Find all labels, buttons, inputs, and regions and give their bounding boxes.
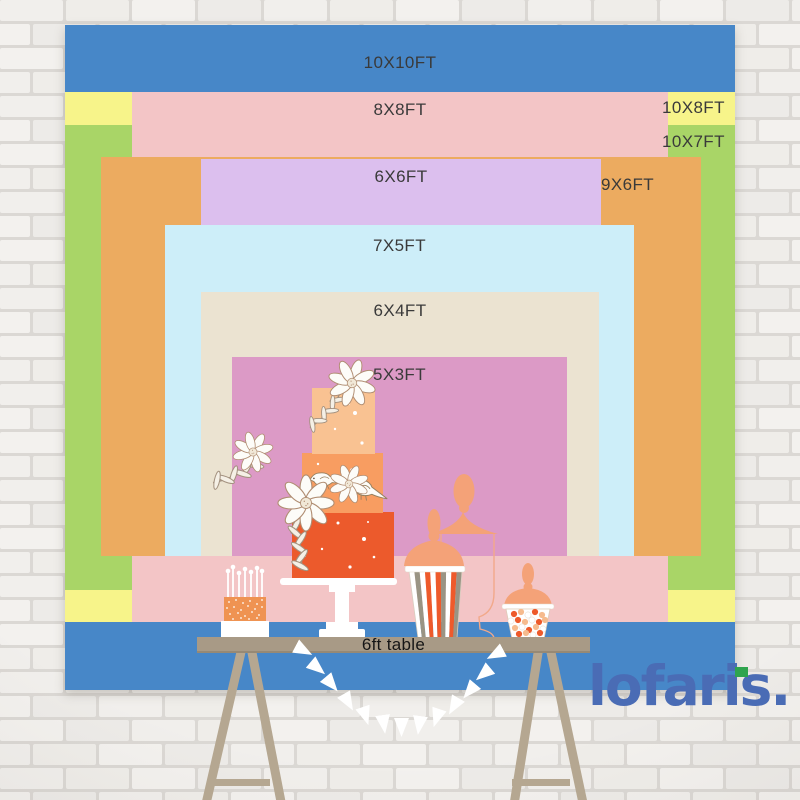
bunting-flag [410, 715, 427, 736]
bunting-flag [426, 707, 446, 730]
bunting-flag [394, 718, 409, 737]
bunting-flag [337, 690, 359, 714]
bunting-flag [443, 694, 465, 718]
bunting-flag [471, 662, 495, 686]
backdrop-size-chart: 10X10FT 8X8FT 6X6FT 7X5FT 6X4FT 5X3FT 10… [0, 0, 800, 800]
brand-logo-text: lofaris. [588, 654, 789, 718]
bunting-flag [320, 672, 344, 696]
bunting-flag [292, 639, 316, 661]
bunting-flag [375, 714, 392, 735]
bunting-flag [483, 643, 507, 665]
bunting-flag [355, 705, 375, 728]
brand-logo-green-block [735, 667, 748, 677]
brand-logo: lofaris. [588, 656, 800, 728]
